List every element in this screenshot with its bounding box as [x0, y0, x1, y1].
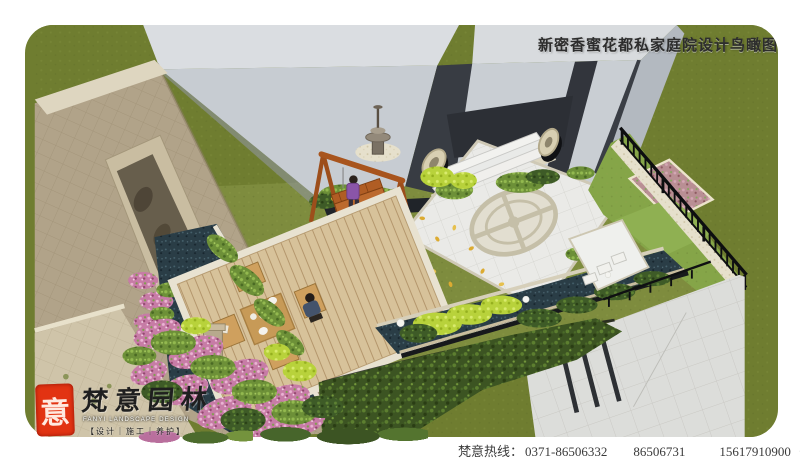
page: { "title": { "text": "新密香蜜花都私家庭院设计鸟瞰图" }… — [0, 0, 800, 470]
rendering-title: 新密香蜜花都私家庭院设计鸟瞰图 — [538, 34, 778, 55]
hotline-label: 梵意热线： — [458, 444, 523, 459]
seal-stamp-icon: 意 — [35, 383, 75, 436]
seal-character: 意 — [39, 387, 71, 432]
foliage-overflow — [238, 427, 428, 448]
logo-tagline-cn: 【设计｜施工｜养护】 — [86, 426, 186, 437]
rendering-card: 新密香蜜花都私家庭院设计鸟瞰图 — [25, 25, 778, 437]
contact-hotline: 梵意热线：0371-865063328650673115617910900（孙） — [458, 441, 800, 460]
phone-number: 15617910900（孙） — [719, 444, 800, 459]
phone-number: 0371-86506332 — [525, 444, 607, 459]
phone-number: 86506731 — [633, 444, 685, 459]
logo-brand-text: 梵意园林 — [80, 379, 215, 418]
logo-tagline-en: FANYI LANDSCAPE DESIGN — [83, 417, 189, 423]
studio-logo: 意 梵意园林 FANYI LANDSCAPE DESIGN 【设计｜施工｜养护】 — [36, 378, 266, 444]
garden-scene — [25, 25, 778, 437]
